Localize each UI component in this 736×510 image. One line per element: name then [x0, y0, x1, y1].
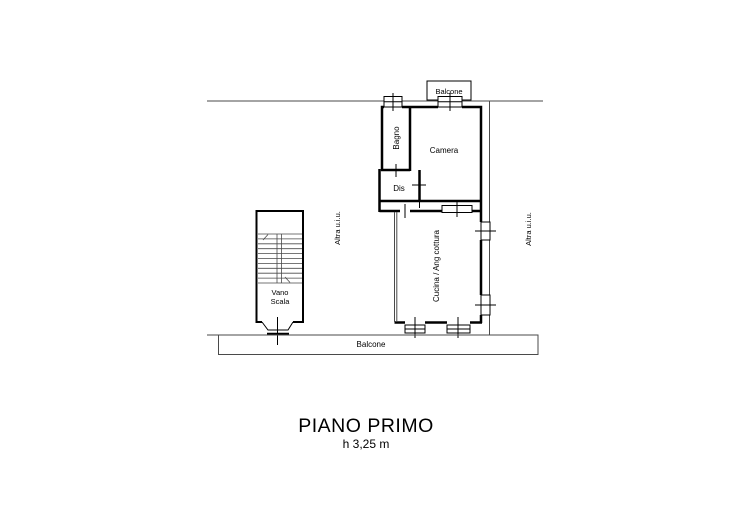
plan-title: PIANO PRIMO	[298, 415, 434, 437]
room-labels: Bagno Camera Dis Cucina / Ang cottura Al…	[333, 126, 533, 302]
stairwell: Vano Scala	[257, 211, 304, 345]
right-wall-opening-upper	[475, 222, 496, 240]
bagno-window	[384, 93, 402, 111]
vano-scala-label-line1: Vano	[272, 288, 289, 297]
plan-subtitle: h 3,25 m	[343, 437, 390, 451]
balcony-bottom: Balcone	[207, 335, 538, 355]
balcony-top-label: Balcone	[435, 87, 462, 96]
floor-plan-page: Balcone	[0, 0, 736, 510]
room-label-camera: Camera	[430, 146, 459, 155]
floor-plan-drawing: Balcone	[0, 0, 736, 510]
vano-scala-label-line2: Scala	[271, 297, 291, 306]
label-altra-uiu-left: Altra u.i.u.	[333, 211, 342, 245]
balcony-bottom-label: Balcone	[357, 340, 386, 349]
room-label-cucina: Cucina / Ang cottura	[432, 229, 441, 302]
stairwell-entrance-door	[262, 317, 293, 345]
cucina-left-partition	[395, 212, 397, 322]
cucina-camera-niche	[442, 200, 472, 217]
room-label-dis: Dis	[393, 184, 405, 193]
room-label-bagno: Bagno	[392, 126, 401, 150]
stair-steps	[258, 234, 302, 283]
label-altra-uiu-right: Altra u.i.u.	[524, 212, 533, 246]
top-wall-right-and-right-wall	[462, 107, 481, 323]
right-wall-opening-lower	[475, 295, 496, 315]
bagno-left-wall	[382, 107, 384, 171]
title-block: PIANO PRIMO h 3,25 m	[298, 415, 434, 451]
